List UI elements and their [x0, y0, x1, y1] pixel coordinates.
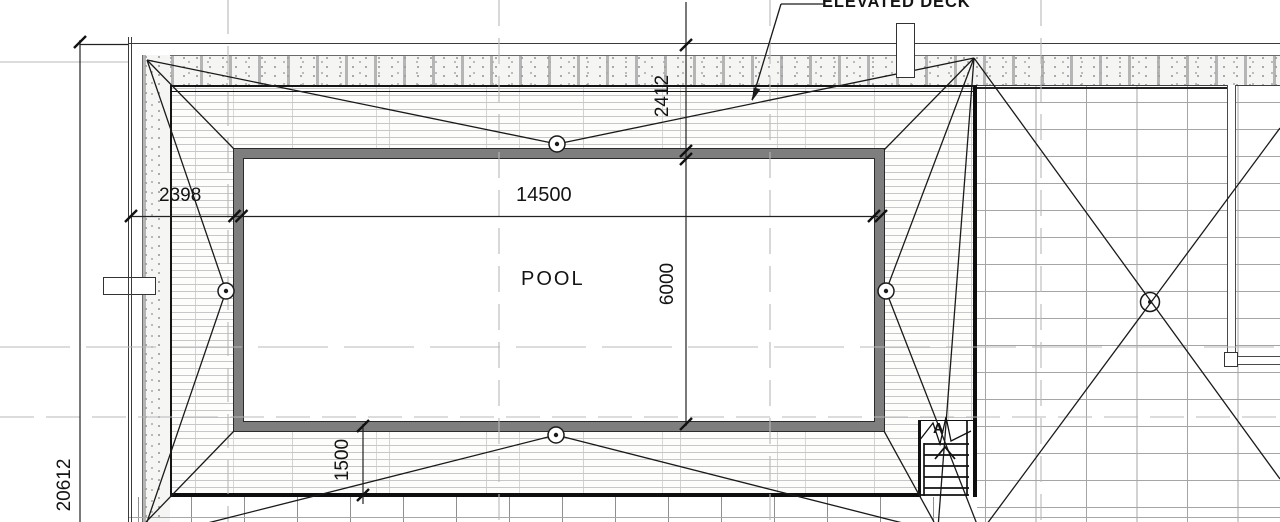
leader-line	[752, 4, 823, 101]
stair-section-label: A	[933, 420, 944, 437]
grid-centerlines	[0, 0, 1280, 522]
post-circles	[218, 136, 1160, 443]
dim-pool-length: 14500	[516, 184, 572, 207]
dim-deck-offset-bottom: 1500	[332, 420, 354, 500]
dimension-ticks	[74, 36, 887, 501]
dim-pool-width: 6000	[657, 244, 679, 324]
brace-lines	[146, 58, 1280, 522]
site-plan-canvas: ELEVATED DECK 14500 2398 POOL A 6000 241…	[0, 0, 1280, 522]
dim-site-length: 20612	[54, 440, 76, 522]
dim-deck-offset-top: 2412	[652, 56, 674, 136]
elevated-deck-label: ELEVATED DECK	[822, 0, 971, 12]
dim-deck-offset-left: 2398	[159, 185, 201, 207]
deck-post-top	[896, 23, 915, 78]
linework-overlay	[0, 0, 1280, 522]
pool-label: POOL	[521, 268, 585, 291]
